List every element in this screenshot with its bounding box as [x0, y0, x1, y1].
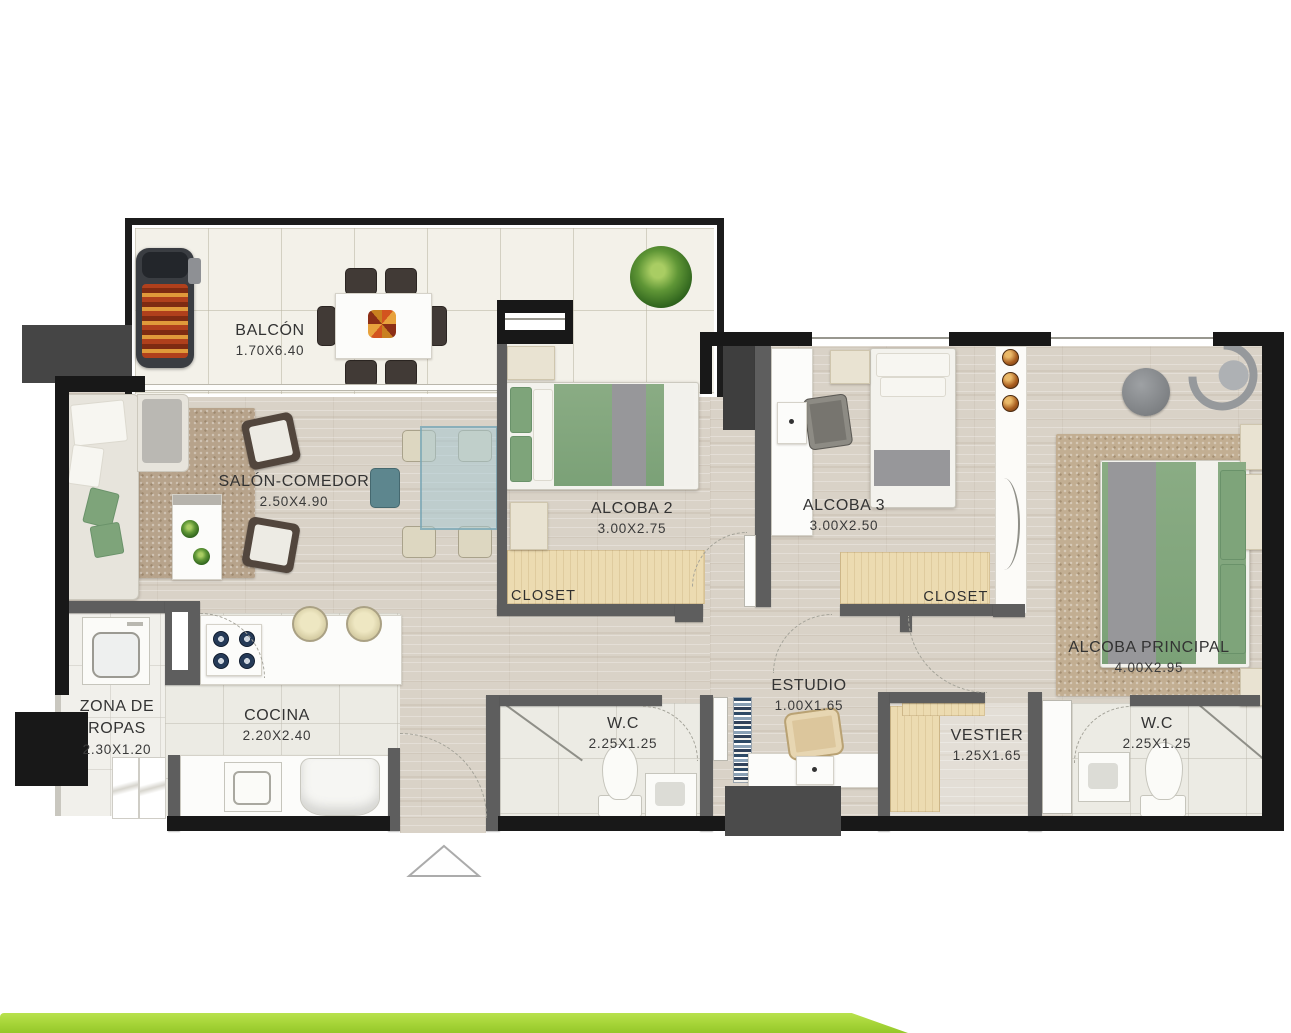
- wall: [890, 692, 985, 703]
- room-name: ALCOBA PRINCIPAL: [1049, 638, 1249, 658]
- pillow: [533, 389, 553, 481]
- bed-alcoba2-duvet: [554, 384, 664, 486]
- wall-exterior: [1262, 332, 1284, 831]
- accent-ribbon: [0, 1013, 908, 1033]
- room-label-balcon: BALCÓN 1.70X6.40: [185, 321, 355, 361]
- room-dims: 2.30X1.20: [57, 740, 177, 760]
- balcony-sliding-door: [132, 384, 497, 391]
- coffee-table-plant-icon: [181, 520, 199, 538]
- pillow: [880, 377, 946, 397]
- bed-principal-fold: [1196, 462, 1218, 664]
- bed-alcoba2-fold: [664, 384, 694, 486]
- coffee-table-plant-icon: [193, 548, 210, 565]
- dining-chair: [402, 526, 436, 558]
- room-label-alcoba3: ALCOBA 3 3.00X2.50: [759, 496, 929, 536]
- wall-exterior: [1213, 332, 1284, 346]
- sofa-cushion: [67, 444, 104, 488]
- room-dims: 2.20X2.40: [192, 726, 362, 746]
- room-label-wc1: W.C 2.25X1.25: [538, 714, 708, 754]
- desk-chair-alcoba3: [803, 393, 854, 451]
- bar-stool: [346, 606, 382, 642]
- sofa-pillow-green: [89, 522, 124, 559]
- balcony-chair: [345, 268, 377, 295]
- room-dims: 3.00X2.50: [759, 516, 929, 536]
- room-dims: 2.25X1.25: [538, 734, 708, 754]
- balcony-chair: [385, 360, 417, 387]
- bar-stool: [292, 606, 328, 642]
- closet-label-alcoba2: CLOSET: [511, 588, 576, 604]
- sofa-cushion: [70, 399, 128, 446]
- wall-exterior: [167, 816, 390, 831]
- nightstand: [507, 346, 555, 380]
- pillow: [876, 353, 950, 377]
- knob-icon: [1002, 395, 1019, 412]
- balcony-chair: [345, 360, 377, 387]
- room-label-vestier: VESTIER 1.25X1.65: [902, 726, 1072, 766]
- room-name: ALCOBA 3: [759, 496, 929, 516]
- laundry-board: [139, 757, 166, 819]
- room-name: SALÓN-COMEDOR: [209, 472, 379, 492]
- room-dims: 2.25X1.25: [1072, 734, 1242, 754]
- laundry-board: [112, 757, 139, 819]
- wall: [755, 346, 771, 607]
- wall-exterior: [498, 816, 1284, 831]
- table-centerpiece: [368, 310, 396, 338]
- room-name: W.C: [538, 714, 708, 734]
- pillow: [510, 387, 532, 433]
- wall: [497, 344, 507, 613]
- wall: [497, 604, 703, 616]
- wall: [1130, 695, 1260, 706]
- room-name: COCINA: [192, 706, 362, 726]
- room-dims: 1.70X6.40: [185, 341, 355, 361]
- room-dims: 2.50X4.90: [209, 492, 379, 512]
- bed-principal-runner: [1108, 462, 1156, 664]
- knob-icon: [1002, 349, 1019, 366]
- room-dims: 4.00X2.95: [1049, 658, 1249, 678]
- wall-exterior: [55, 376, 69, 695]
- balcony-chair: [385, 268, 417, 295]
- wall: [840, 604, 993, 616]
- window: [1051, 332, 1213, 346]
- room-name: ESTUDIO: [724, 676, 894, 696]
- glass-dining-table: [420, 426, 498, 530]
- room-label-zona-ropas: ZONA DE ROPAS 2.30X1.20: [57, 696, 177, 760]
- room-name: VESTIER: [902, 726, 1072, 746]
- wall: [486, 695, 500, 831]
- wall: [675, 604, 703, 622]
- armchair: [241, 516, 301, 574]
- pouf: [1122, 368, 1170, 416]
- room-name: ZONA DE ROPAS: [57, 696, 177, 740]
- room-dims: 1.25X1.65: [902, 746, 1072, 766]
- window: [505, 313, 565, 330]
- wall-exterior: [706, 332, 812, 346]
- room-name: W.C: [1072, 714, 1242, 734]
- balcony-plant-icon: [630, 246, 692, 308]
- pillow: [1220, 470, 1246, 560]
- laptop-icon: [777, 402, 807, 444]
- room-name: ALCOBA 2: [547, 499, 717, 519]
- closet-label-alcoba3: CLOSET: [916, 589, 996, 605]
- bed-alcoba3-runner: [874, 450, 950, 486]
- nightstand: [510, 502, 548, 550]
- dishwasher: [300, 758, 380, 816]
- wall-exterior: [700, 332, 712, 394]
- wall-exterior: [949, 332, 1051, 346]
- room-label-alcoba2: ALCOBA 2 3.00X2.75: [547, 499, 717, 539]
- room-label-estudio: ESTUDIO 1.00X1.65: [724, 676, 894, 716]
- nightstand: [830, 350, 870, 384]
- washing-machine: [82, 617, 150, 685]
- pillow: [510, 436, 532, 482]
- grill-handle-icon: [188, 258, 201, 284]
- window: [812, 332, 949, 346]
- wall: [500, 695, 662, 706]
- bed-alcoba2-runner: [612, 384, 646, 486]
- room-label-cocina: COCINA 2.20X2.40: [192, 706, 362, 746]
- desktop-computer-icon: [796, 756, 834, 785]
- sink: [645, 773, 697, 817]
- wall: [993, 604, 1025, 617]
- room-label-principal: ALCOBA PRINCIPAL 4.00X2.95: [1049, 638, 1249, 678]
- armchair: [240, 411, 301, 471]
- room-label-salon: SALÓN-COMEDOR 2.50X4.90: [209, 472, 379, 512]
- duct-block: [725, 786, 841, 836]
- room-dims: 1.00X1.65: [724, 696, 894, 716]
- pier-niche: [172, 612, 188, 670]
- kitchen-sink: [224, 762, 282, 812]
- floor-plan: BALCÓN 1.70X6.40 SALÓN-COMEDOR 2.50X4.90…: [0, 0, 1291, 1033]
- knob-icon: [1002, 372, 1019, 389]
- floor-entrance-patch: [400, 816, 486, 833]
- room-label-wc2: W.C 2.25X1.25: [1072, 714, 1242, 754]
- exterior-accent: [22, 325, 132, 383]
- dining-chair: [458, 526, 492, 558]
- vestier-shelf: [902, 703, 985, 716]
- sofa-throw: [142, 399, 182, 463]
- room-name: BALCÓN: [185, 321, 355, 341]
- room-dims: 3.00X2.75: [547, 519, 717, 539]
- entrance-arrow-icon: [405, 843, 483, 879]
